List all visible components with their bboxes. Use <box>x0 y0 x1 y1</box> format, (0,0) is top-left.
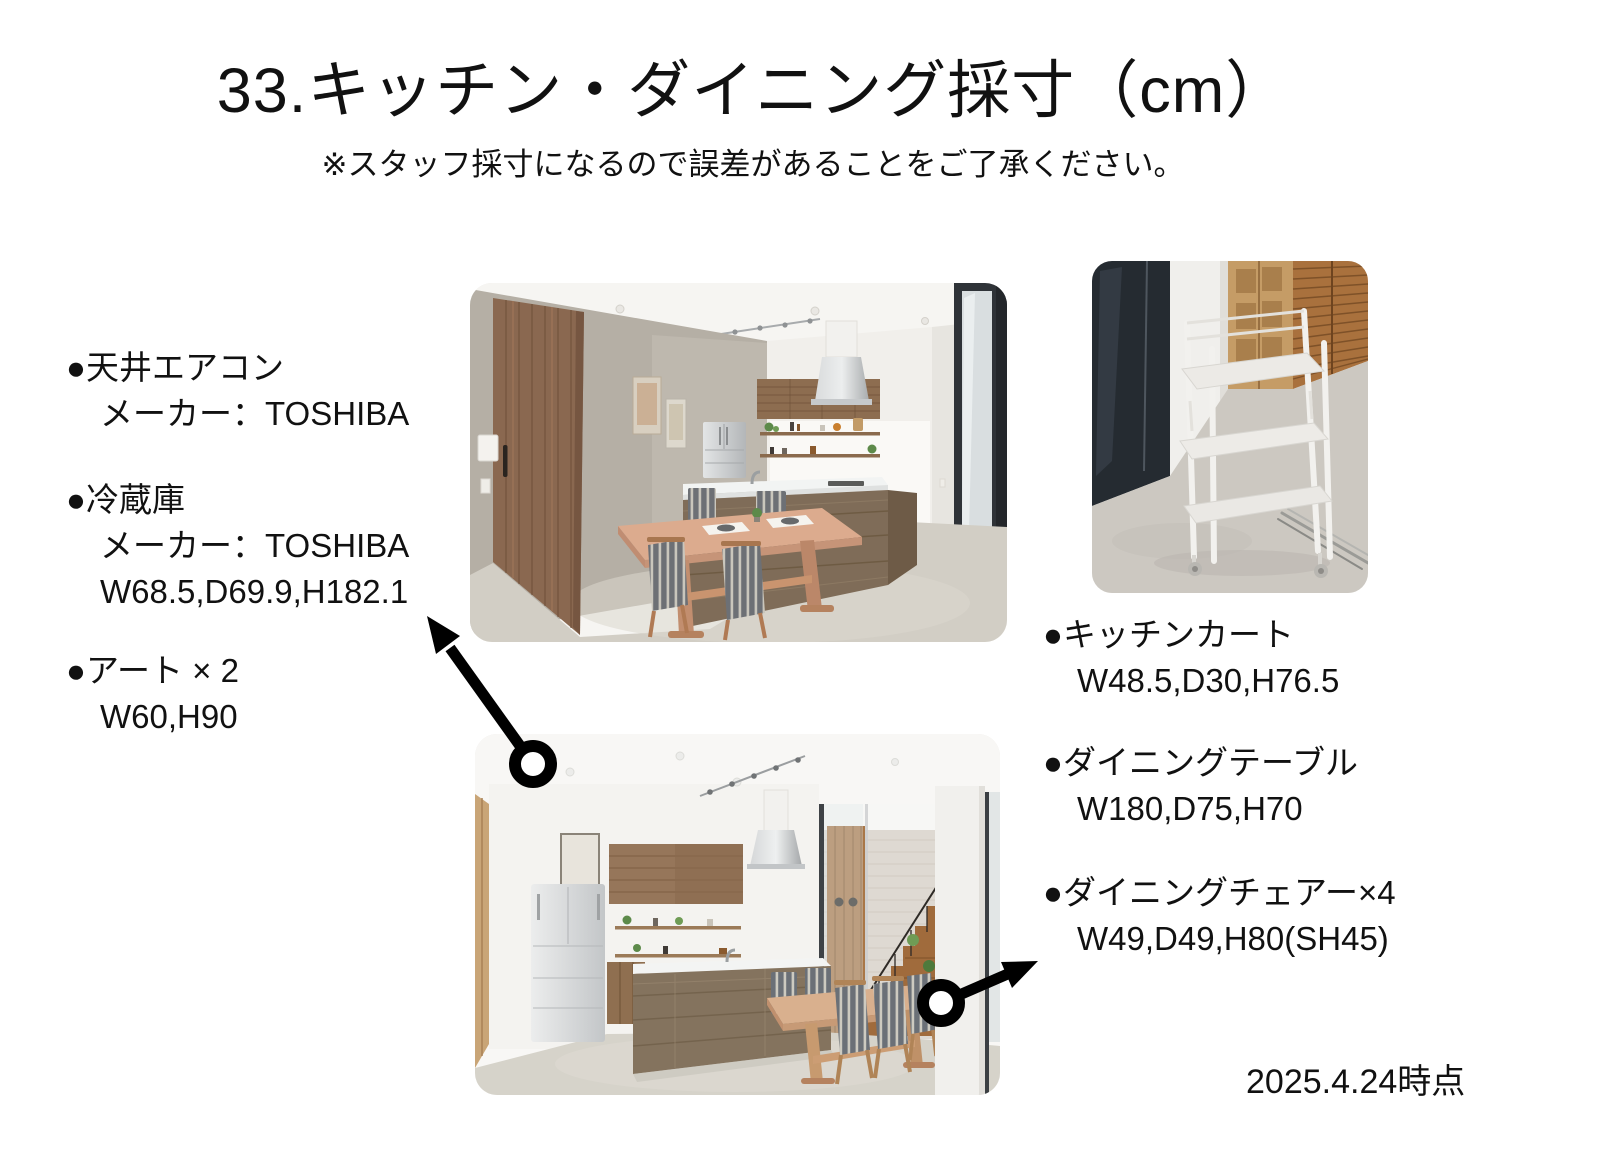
white-pillar <box>935 786 985 1095</box>
photo-kitchen-dining-1 <box>470 283 1007 642</box>
bullet: ● <box>66 652 86 689</box>
plant <box>907 934 919 946</box>
item-detail: メーカー：TOSHIBA <box>66 523 409 569</box>
bullet: ● <box>1043 744 1063 781</box>
bullet: ● <box>1043 616 1063 653</box>
item-label-line: ●天井エアコン <box>66 345 409 391</box>
refrigerator <box>531 884 605 1042</box>
wall-outlet <box>940 479 945 487</box>
item-kitchen-cart: ●キッチンカート W48.5,D30,H76.5 <box>1043 612 1339 704</box>
item-dimensions: W60,H90 <box>66 694 239 740</box>
item-label-line: ●ダイニングテーブル <box>1043 740 1358 786</box>
item-label-line: ●ダイニングチェアー×4 <box>1043 870 1396 916</box>
bullet: ● <box>66 481 86 518</box>
photo-kitchen-dining-2 <box>475 734 1000 1095</box>
item-dimensions: W68.5,D69.9,H182.1 <box>66 569 409 615</box>
kitchen-cart-illustration <box>1092 261 1368 593</box>
item-art: ●アート × 2 W60,H90 <box>66 648 239 740</box>
item-label-line: ●アート × 2 <box>66 648 239 694</box>
item-dimensions: W180,D75,H70 <box>1043 786 1358 832</box>
item-label-line: ●キッチンカート <box>1043 612 1339 658</box>
date-note: 2025.4.24時点 <box>1246 1062 1465 1102</box>
left-wood-edge <box>475 794 489 1068</box>
kitchen-dining-1-illustration <box>470 283 1007 642</box>
dark-window <box>1092 261 1170 506</box>
plant <box>923 960 935 972</box>
item-refrigerator: ●冷蔵庫 メーカー：TOSHIBA W68.5,D69.9,H182.1 <box>66 477 409 615</box>
kitchen-dining-2-illustration <box>475 734 1000 1095</box>
table-plant <box>752 508 762 518</box>
cooktop <box>828 481 864 486</box>
refrigerator <box>703 422 746 478</box>
item-dining-table: ●ダイニングテーブル W180,D75,H70 <box>1043 740 1358 832</box>
item-dining-chairs: ●ダイニングチェアー×4 W49,D49,H80(SH45) <box>1043 870 1396 962</box>
item-label: キッチンカート <box>1063 616 1294 653</box>
item-dimensions: W49,D49,H80(SH45) <box>1043 916 1396 962</box>
slide-kitchen-dining-measurements: 33.キッチン・ダイニング採寸（cm） ※スタッフ採寸になるので誤差があることを… <box>0 0 1600 1169</box>
photo-kitchen-cart <box>1092 261 1368 593</box>
item-label: アート × 2 <box>86 652 239 689</box>
item-label: 天井エアコン <box>86 349 284 386</box>
item-label: 冷蔵庫 <box>86 481 185 518</box>
item-dimensions: W48.5,D30,H76.5 <box>1043 658 1339 704</box>
door-handle <box>503 445 508 477</box>
upper-wood-cabinet <box>609 844 743 904</box>
item-detail: メーカー：TOSHIBA <box>66 391 409 437</box>
bullet: ● <box>66 349 86 386</box>
page-title: 33.キッチン・ダイニング採寸（cm） <box>217 52 1290 131</box>
item-label: ダイニングチェアー×4 <box>1063 874 1396 911</box>
page-subtitle: ※スタッフ採寸になるので誤差があることをご了承ください。 <box>322 146 1185 183</box>
item-label: ダイニングテーブル <box>1063 744 1358 781</box>
bullet: ● <box>1043 874 1063 911</box>
item-label-line: ●冷蔵庫 <box>66 477 409 523</box>
window-right <box>954 283 1007 545</box>
item-ceiling-aircon: ●天井エアコン メーカー：TOSHIBA <box>66 345 409 437</box>
